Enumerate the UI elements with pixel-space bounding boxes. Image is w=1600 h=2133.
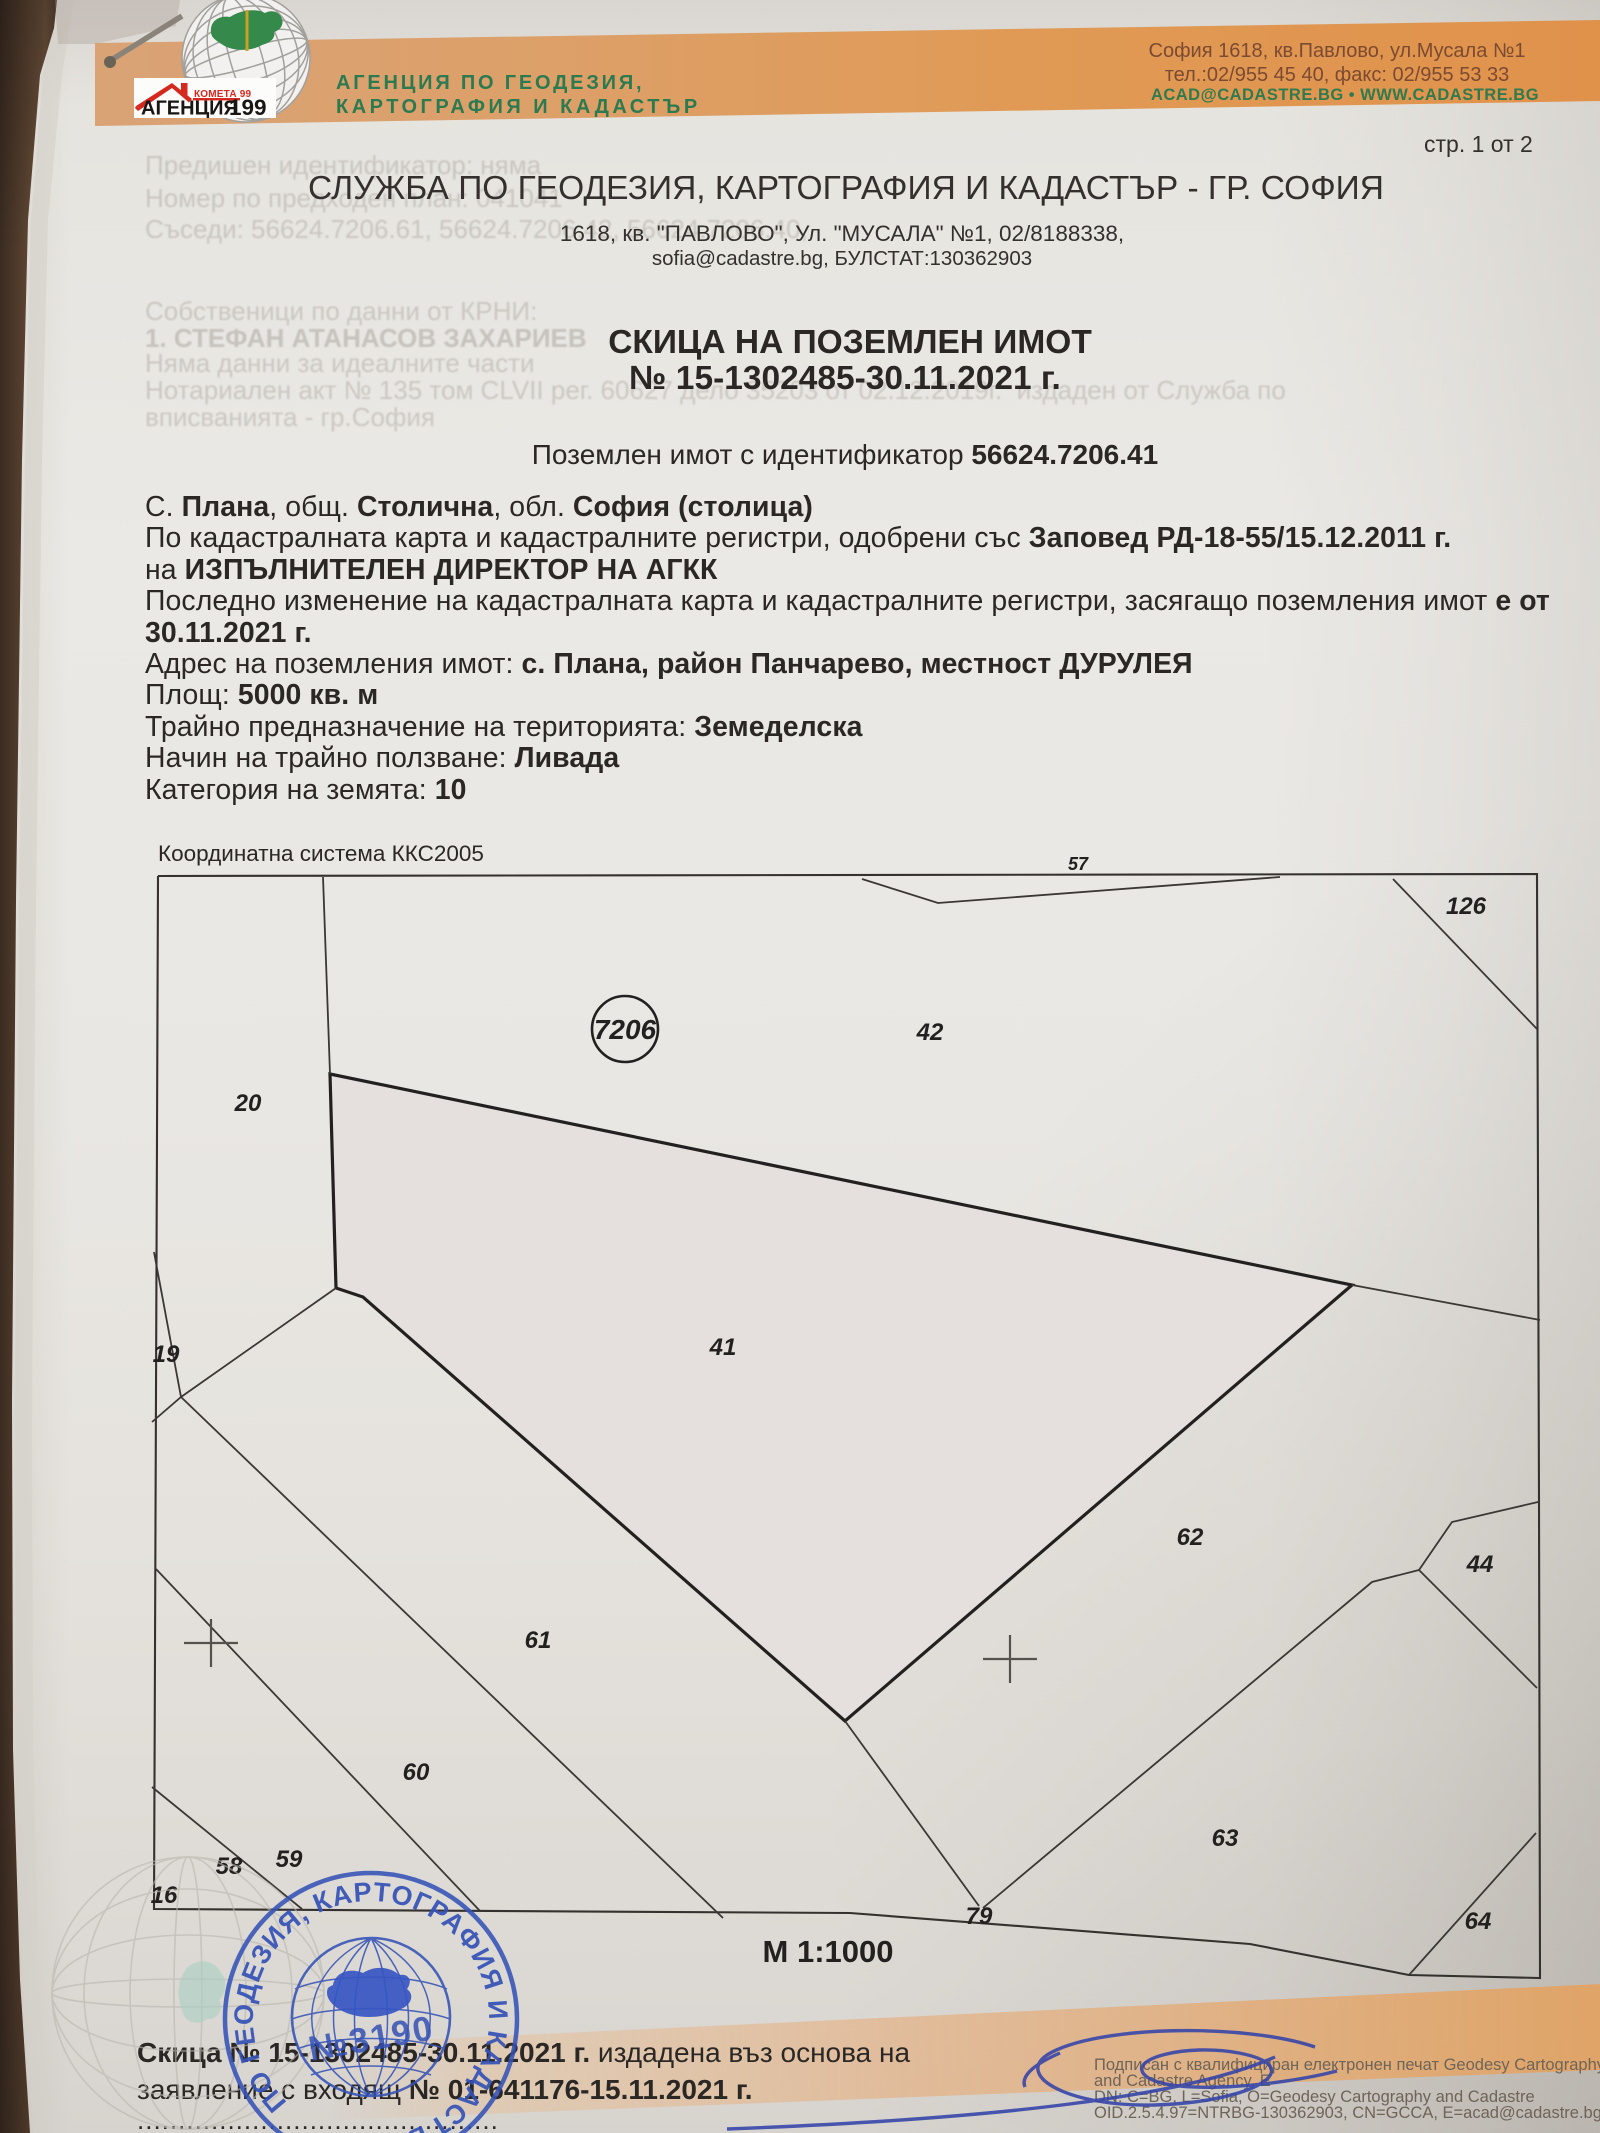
svg-text:41: 41 [709,1334,737,1361]
svg-text:7206: 7206 [594,1014,657,1045]
svg-text:62: 62 [1177,1524,1204,1551]
svg-text:60: 60 [403,1759,430,1786]
svg-text:44: 44 [1466,1551,1494,1578]
svg-text:126: 126 [1446,893,1487,920]
svg-text:64: 64 [1465,1908,1492,1935]
svg-text:20: 20 [234,1090,262,1117]
svg-text:57: 57 [1068,854,1089,874]
svg-text:19: 19 [153,1341,180,1368]
svg-text:63: 63 [1212,1825,1239,1852]
svg-text:79: 79 [966,1903,993,1930]
svg-text:61: 61 [525,1627,552,1654]
svg-text:42: 42 [916,1019,944,1046]
